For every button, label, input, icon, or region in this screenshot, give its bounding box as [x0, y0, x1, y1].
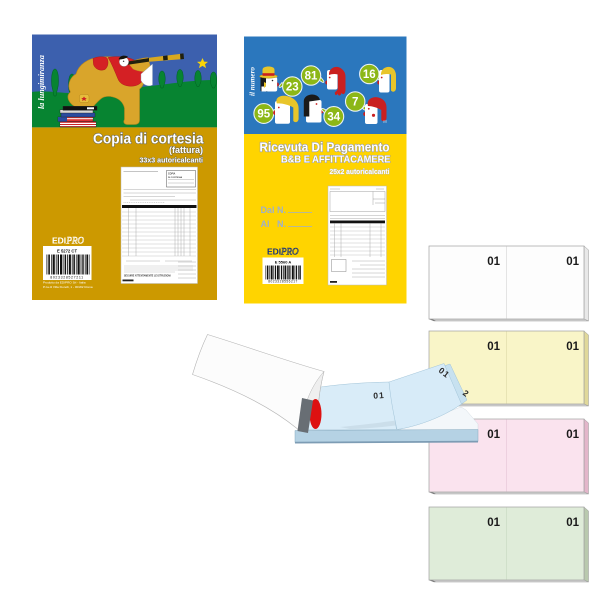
- svg-text:01: 01: [566, 256, 579, 268]
- svg-text:E 5560 A: E 5560 A: [275, 260, 292, 265]
- svg-text:01: 01: [487, 429, 500, 441]
- svg-text:95: 95: [257, 109, 270, 121]
- svg-text:P.za di Villa Fiorelli, 1 - 00: P.za di Villa Fiorelli, 1 - 00182 Roma: [43, 285, 93, 289]
- svg-text:01: 01: [566, 517, 579, 529]
- svg-text:la lungimiranza: la lungimiranza: [37, 55, 46, 109]
- svg-text:34: 34: [327, 112, 340, 124]
- svg-text:33x3 autoricalcanti: 33x3 autoricalcanti: [140, 157, 204, 164]
- svg-text:E 5272 CT: E 5272 CT: [57, 249, 77, 254]
- svg-text:01: 01: [566, 429, 579, 441]
- svg-text:01: 01: [566, 341, 579, 353]
- svg-text:B&B E AFFITTACAMERE: B&B E AFFITTACAMERE: [281, 155, 391, 166]
- svg-text:Ricevuta Di Pagamento: Ricevuta Di Pagamento: [260, 140, 390, 155]
- svg-text:PRO: PRO: [280, 247, 299, 257]
- svg-text:COPIA: COPIA: [168, 173, 176, 176]
- svg-text:Al N.: Al N.: [261, 219, 287, 229]
- svg-text:01: 01: [373, 390, 385, 401]
- svg-text:Prodotto da EDIPRO Srl - Itali: Prodotto da EDIPRO Srl - Italia: [43, 280, 86, 284]
- svg-text:DI CORTESIA: DI CORTESIA: [168, 176, 183, 179]
- svg-text:(fattura): (fattura): [169, 145, 203, 155]
- svg-text:7: 7: [352, 97, 358, 109]
- svg-text:25x2 autoricalcanti: 25x2 autoricalcanti: [330, 169, 390, 176]
- svg-text:01: 01: [487, 341, 500, 353]
- svg-text:SEGUIRE ATTENTAMENTE LE ISTRUZ: SEGUIRE ATTENTAMENTE LE ISTRUZIONI: [124, 275, 171, 278]
- svg-text:Dal N.: Dal N.: [261, 205, 287, 215]
- svg-text:EDI: EDI: [267, 247, 281, 257]
- svg-text:01: 01: [487, 256, 500, 268]
- svg-text:81: 81: [305, 71, 318, 83]
- svg-text:23: 23: [286, 82, 299, 94]
- svg-text:16: 16: [363, 69, 376, 81]
- svg-text:8023328556217: 8023328556217: [268, 280, 298, 284]
- svg-text:EDI: EDI: [52, 236, 66, 246]
- svg-text:PRO: PRO: [66, 236, 85, 246]
- svg-text:il numero: il numero: [249, 67, 257, 96]
- svg-text:01: 01: [487, 517, 500, 529]
- svg-text:8023328527211: 8023328527211: [50, 276, 84, 280]
